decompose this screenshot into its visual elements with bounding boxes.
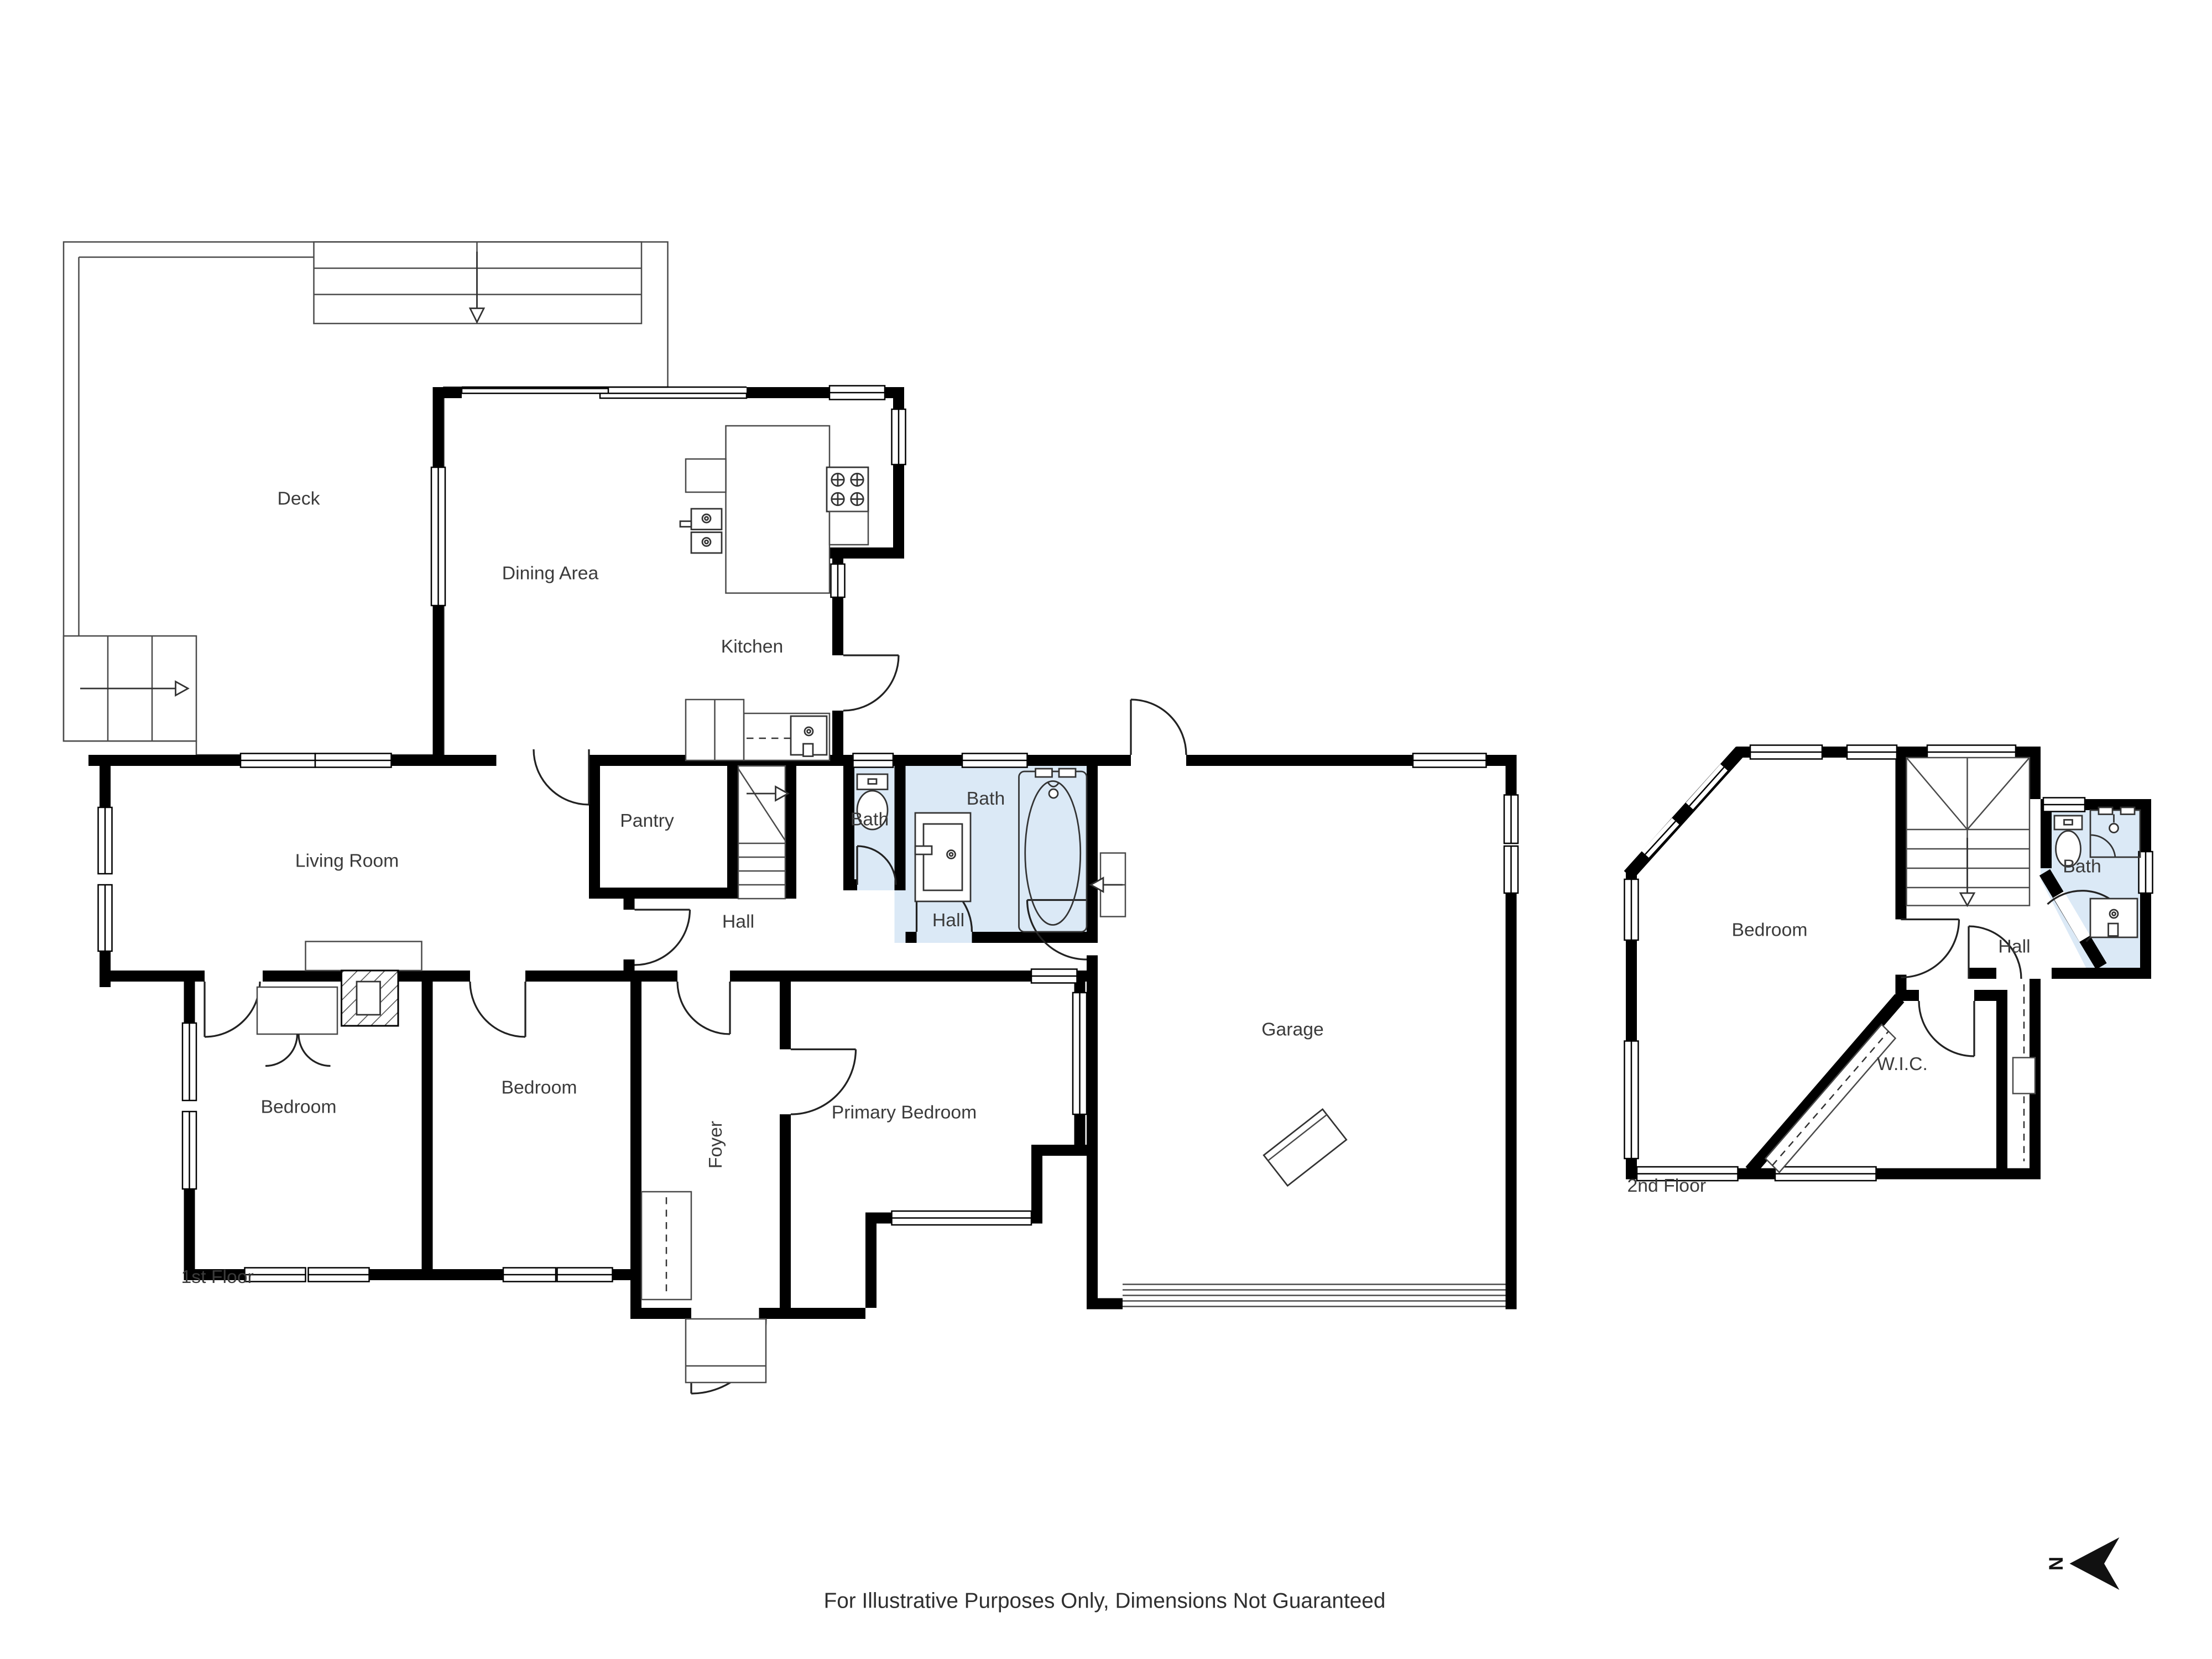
window [831,564,845,597]
room-label-deck: Deck [278,488,320,509]
room-label-hall: Hall [1998,936,2030,957]
door [1919,1001,1974,1056]
windows-second-floor [1625,745,2153,1181]
kitchen-counter-south [686,700,830,760]
floor-plan-drawing: Deck Dining Area Kitchen Living Room Pan… [0,0,2212,1659]
deck-stairs-left [64,636,196,741]
window [1031,969,1077,983]
window [892,1211,1032,1225]
water-heater-icon [1264,1109,1346,1186]
window [2043,798,2085,812]
sliding-door [462,387,747,398]
room-label-bath-main: Bath [967,788,1005,809]
room-label-wic: W.I.C. [1877,1053,1928,1074]
wic-closet-rod [1766,1025,1896,1173]
garage-fixtures [1091,853,1506,1307]
north-arrow-icon [2070,1537,2120,1590]
disclaimer-text: For Illustrative Purposes Only, Dimensio… [824,1589,1386,1613]
window [503,1268,556,1282]
stairs-second-floor [1907,758,2030,906]
window [245,1268,306,1282]
window [853,754,894,768]
island-appendage [686,459,726,492]
room-label-kitchen: Kitchen [721,636,784,657]
door [205,982,260,1037]
north-label: N [2046,1557,2067,1571]
door [1131,700,1186,755]
room-label-hall-west: Hall [722,911,754,932]
window [98,807,112,874]
chamfer-window [1689,768,1724,806]
closets-first-floor [257,987,691,1300]
window [182,1112,196,1189]
window [241,754,315,768]
first-floor-plan: Deck Dining Area Kitchen Living Room Pan… [64,242,1518,1394]
room-label-dining-area: Dining Area [502,563,599,584]
window [830,386,885,400]
vanity-sink-icon [915,813,971,901]
window [1775,1167,1876,1181]
window [309,1268,369,1282]
room-label-hall-east: Hall [932,910,964,931]
window [315,754,392,768]
caption-first-floor: 1st Floor [181,1266,254,1287]
door [470,982,525,1037]
north-arrow: N [2046,1537,2120,1590]
room-label-bath-small: Bath [851,809,889,830]
room-label-bath: Bath [2063,856,2101,877]
door [1901,920,1959,978]
window [1847,745,1897,759]
door [843,655,899,711]
window [1625,1041,1639,1159]
door [677,982,730,1034]
window [1625,879,1639,940]
window [557,1268,613,1282]
entry-porch [686,1319,766,1383]
floor-plan-page: Deck Dining Area Kitchen Living Room Pan… [0,0,2212,1659]
window [431,467,445,606]
caption-second-floor: 2nd Floor [1627,1175,1707,1196]
island-sink-icon [680,509,722,553]
window [1504,795,1518,844]
door [534,749,589,805]
room-label-primary-bedroom: Primary Bedroom [832,1102,977,1123]
window [182,1023,196,1100]
room-label-living-room: Living Room [295,851,399,872]
window [1504,846,1518,893]
stairs-first-floor [738,766,788,899]
garage-door [1123,1285,1506,1307]
window [962,754,1027,768]
room-label-foyer: Foyer [705,1121,726,1168]
room-label-bedroom-west: Bedroom [261,1097,337,1118]
bedroom-closet [257,987,337,1066]
deck-stairs-top [314,242,642,324]
kitchen-counter-east [830,512,868,545]
chamfer-window [1645,821,1676,854]
window [98,885,112,951]
second-floor-plan: Bedroom Bath Hall W.I.C. 2nd Floor [1625,745,2153,1197]
door [635,910,690,965]
bedroom-wic-diagonal-wall [1750,998,1900,1171]
room-label-garage: Garage [1261,1019,1324,1040]
room-label-bedroom: Bedroom [1732,920,1808,941]
vanity-sink-icon [2090,899,2137,937]
room-label-bedroom-middle: Bedroom [502,1077,577,1098]
kitchen-island [726,426,830,593]
window [1750,745,1822,759]
foyer-closet [641,1192,691,1300]
window [1073,993,1087,1114]
kitchen-sink-icon [791,716,827,757]
window [1413,754,1486,768]
room-label-pantry: Pantry [620,810,674,831]
window [892,409,906,465]
hearth [306,942,422,971]
deck-outline [64,242,668,755]
stove-icon [827,467,868,512]
